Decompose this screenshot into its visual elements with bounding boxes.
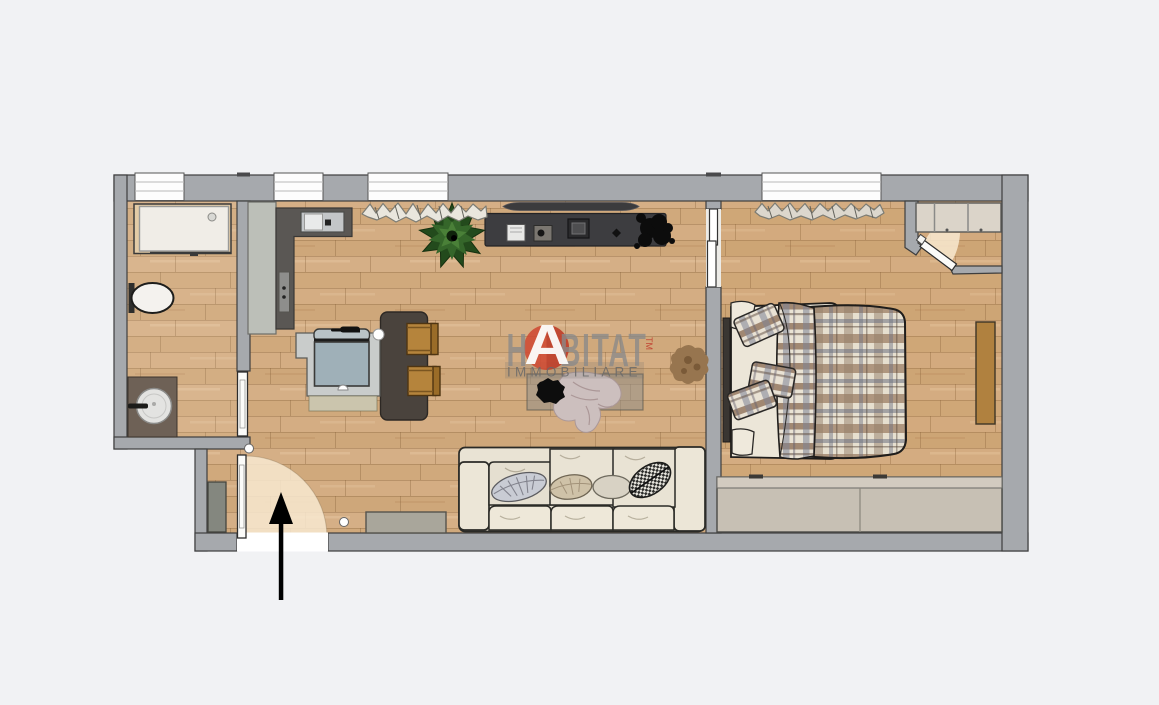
svg-text:IMMOBILIARE: IMMOBILIARE <box>507 365 642 380</box>
svg-text:TM: TM <box>644 337 654 350</box>
